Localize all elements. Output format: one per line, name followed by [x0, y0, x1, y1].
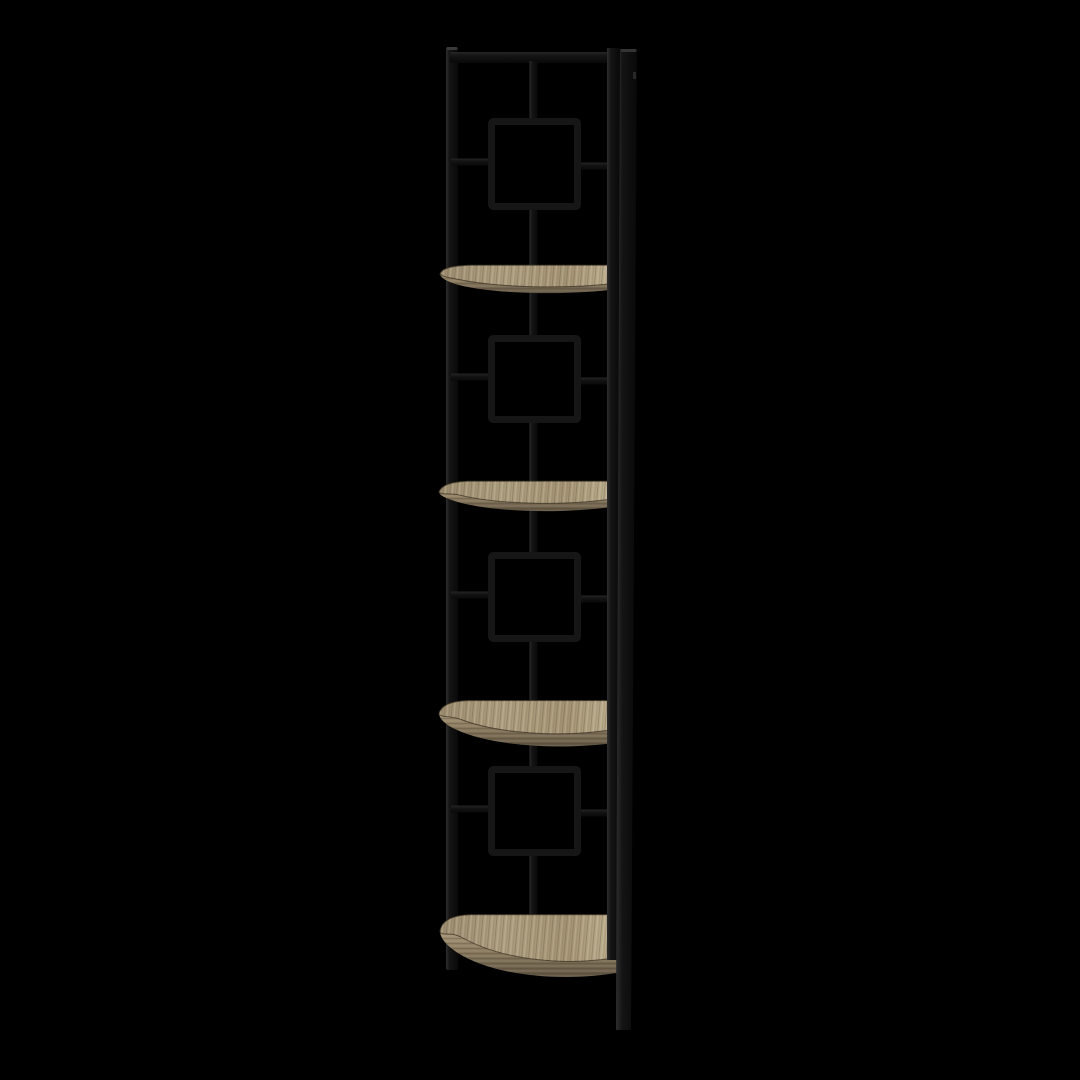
left-post-cap [447, 47, 458, 50]
post-fastener-mark [633, 72, 636, 79]
etagere-illustration [0, 0, 1080, 1080]
right-front-post-cap [621, 49, 637, 52]
shelf-1 [440, 265, 622, 293]
square-motif-4 [492, 770, 578, 853]
shelf-2 [439, 481, 622, 511]
square-motif-2 [492, 339, 578, 420]
shelf-4 [440, 915, 622, 977]
square-motif-1 [492, 122, 578, 207]
shelf-3 [439, 701, 622, 747]
square-motif-3 [492, 556, 578, 639]
product-photo [0, 0, 1080, 1080]
left-post [446, 47, 458, 970]
